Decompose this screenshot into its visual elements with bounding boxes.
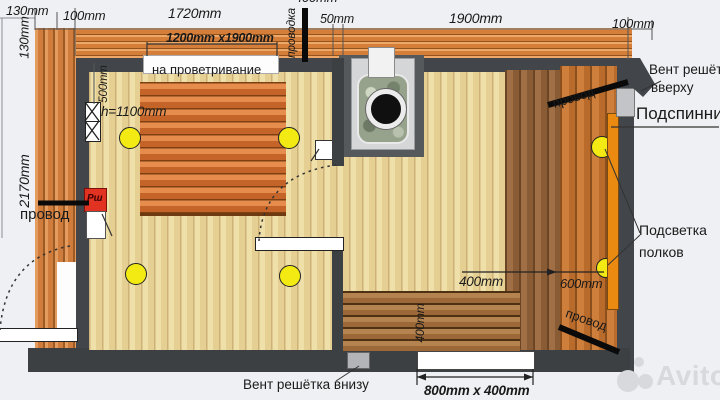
partition-wall-lower (332, 247, 343, 350)
label-wire-left: провод (20, 206, 69, 223)
dim-2170mm: 2170mm (16, 152, 32, 210)
avito-watermark-text: Avito (656, 360, 720, 392)
shield-label: Рш (87, 193, 103, 204)
duct-box-1 (85, 102, 101, 123)
duct-box-2 (85, 121, 101, 142)
upper-bench (140, 82, 286, 216)
backrest-strip (607, 113, 619, 310)
vent-grille-right (616, 88, 635, 117)
light-4 (279, 265, 301, 287)
label-lighting-1: Подсветка (639, 222, 707, 238)
dim-1900mm: 1900mm (449, 10, 502, 26)
dim-bench-1200x1900: 1200mm x1900mm (166, 31, 274, 45)
dim-100mm-left: 100mm (63, 8, 105, 23)
exterior-door-leaf (0, 328, 78, 342)
stove-ring (366, 89, 406, 129)
avito-watermark: Avito (612, 350, 720, 400)
avito-logo-dot-medium (638, 374, 653, 389)
dim-130mm-left: 130mm (17, 15, 32, 61)
dim-bench-height: h=1100mm (101, 104, 166, 119)
label-lighting-2: полков (639, 244, 684, 260)
vent-grille-bottom (347, 352, 370, 369)
chimney-pipe (368, 47, 395, 78)
label-vent-note: на проветривание (152, 62, 261, 77)
partition-wall-upper (332, 58, 344, 166)
top-wall-cladding (35, 28, 632, 61)
label-vent-top-1: Вент решётка (649, 62, 720, 77)
interior-door-leaf (255, 237, 344, 251)
dim-400mm-right: 400mm (459, 274, 503, 289)
dim-800x400: 800mm x 400mm (424, 383, 529, 398)
light-1 (119, 127, 141, 149)
light-3 (125, 263, 147, 285)
bottom-wall (28, 348, 630, 372)
dim-1720mm: 1720mm (168, 5, 221, 21)
label-vent-top-2: вверху (651, 80, 694, 95)
dim-600mm: 600mm (560, 276, 602, 291)
label-wiring-vertical: проводка (284, 5, 298, 61)
dim-50mm: 50mm (320, 12, 354, 26)
white-box (86, 211, 106, 239)
dim-500mm: 500mm (98, 63, 110, 105)
light-2 (278, 127, 300, 149)
dim-400mm-bench-rotated: 400mm (413, 300, 427, 346)
label-vent-bottom: Вент решётка внизу (243, 377, 369, 392)
exterior-door-opening (57, 262, 76, 333)
bottom-bench (343, 291, 520, 351)
label-backrest: Подспинник (636, 104, 720, 124)
dim-100mm-right: 100mm (612, 16, 654, 31)
avito-logo-dot-small (634, 357, 644, 367)
avito-logo-dot-large (617, 370, 639, 392)
dim-clipped-top: 400mm (295, 0, 337, 5)
bottom-window (417, 351, 535, 370)
sauna-floor-plan: Рш (0, 0, 720, 400)
electrical-shield-box: Рш (84, 188, 107, 212)
